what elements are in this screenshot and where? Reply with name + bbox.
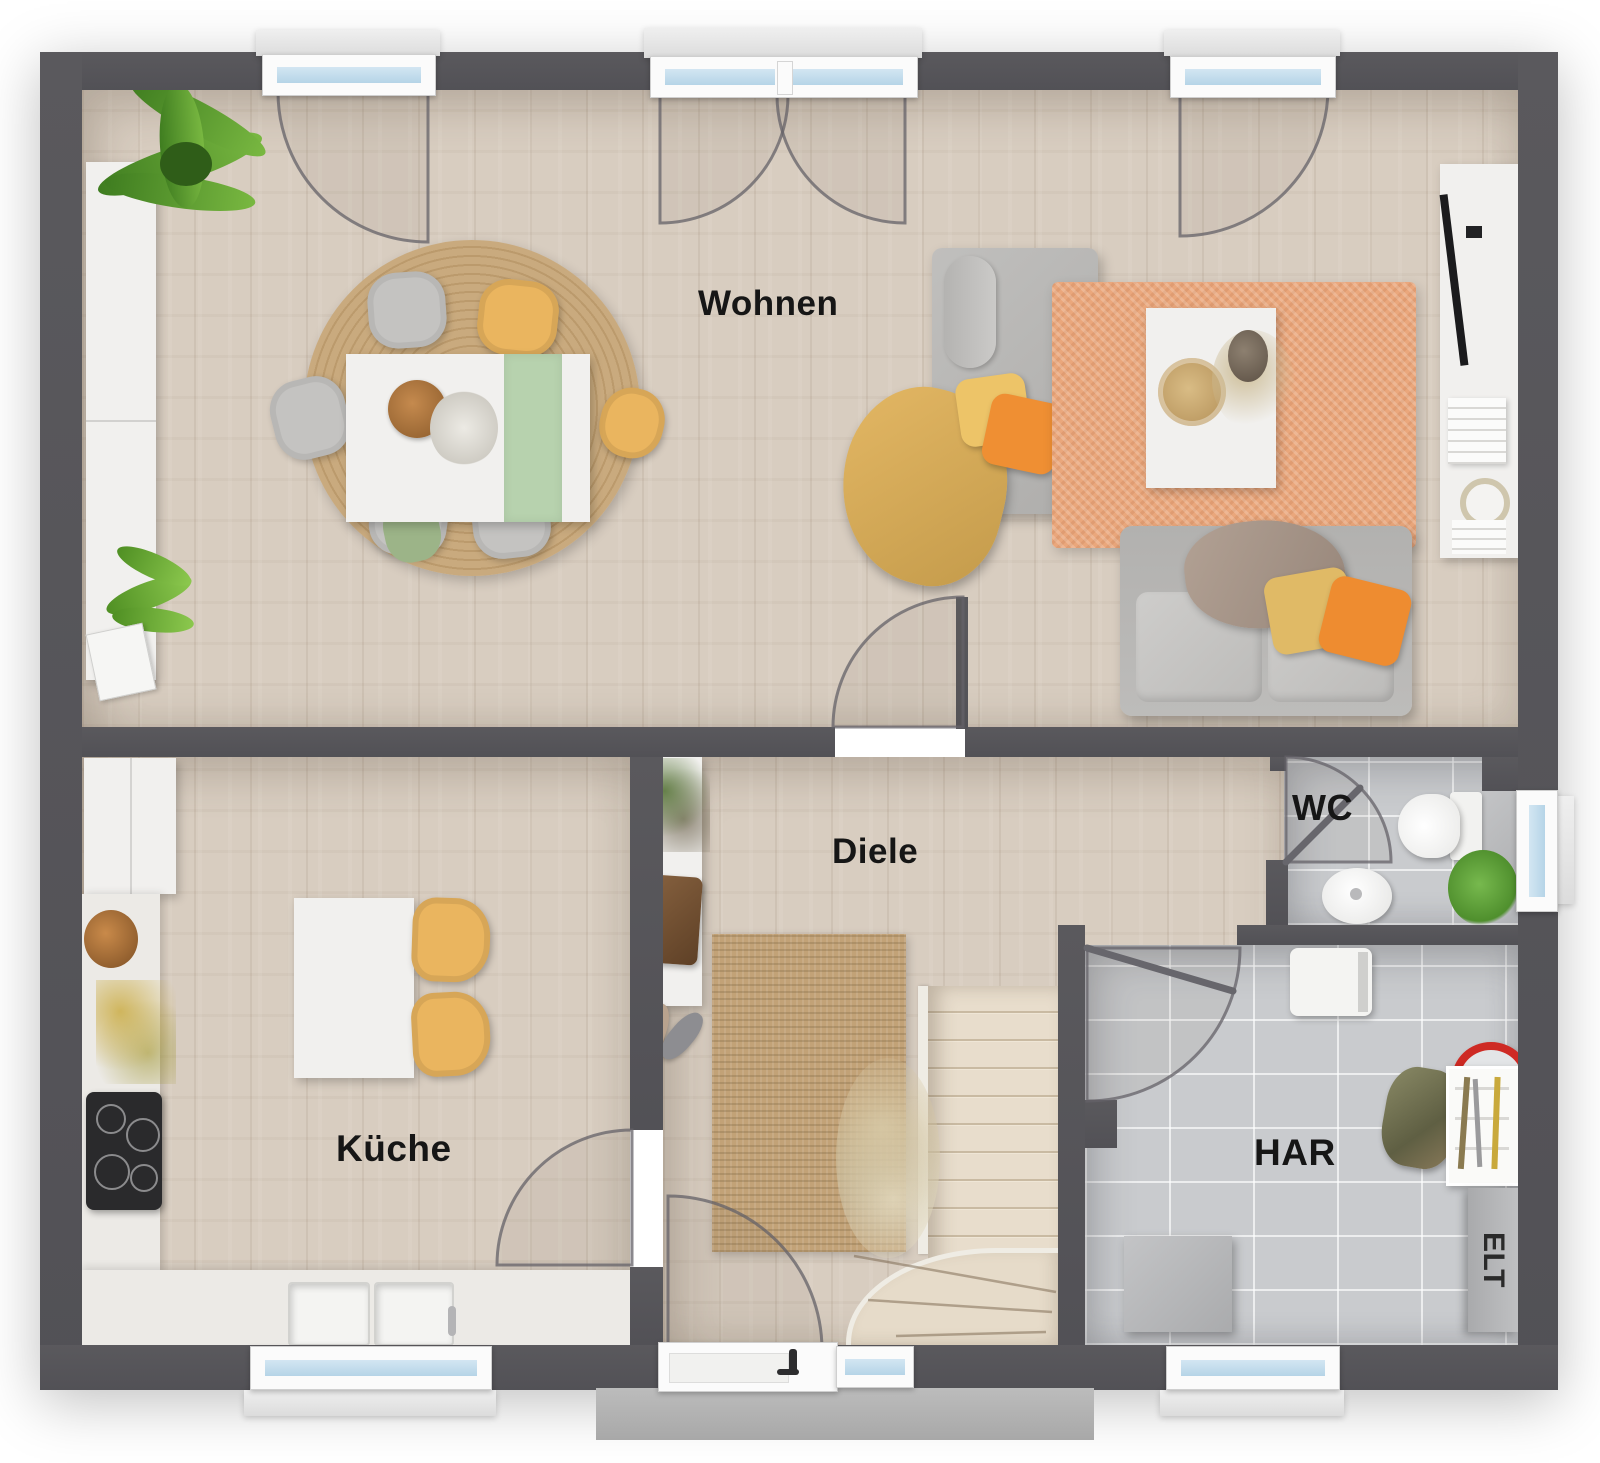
terrace-doors bbox=[650, 56, 918, 98]
label-har: HAR bbox=[1254, 1134, 1336, 1171]
floor-plan: Wohnen Diele Küche WC HAR ELT bbox=[0, 0, 1600, 1463]
window-swing-top-left bbox=[278, 92, 428, 242]
window-lintel bbox=[644, 28, 922, 58]
window-kitchen bbox=[250, 1346, 492, 1390]
door-swing-kueche bbox=[497, 1130, 632, 1265]
label-wc: WC bbox=[1292, 790, 1353, 826]
door-handle bbox=[777, 1369, 799, 1375]
window-lintel bbox=[1164, 30, 1340, 56]
stair-winder-tread bbox=[854, 1256, 1056, 1292]
stair-winder-tread bbox=[868, 1300, 1052, 1312]
window-lintel bbox=[256, 30, 440, 56]
window-swing-top-right bbox=[1180, 88, 1328, 236]
entry-sidelight bbox=[836, 1346, 914, 1388]
label-diele: Diele bbox=[832, 834, 918, 869]
stair-winder-tread bbox=[896, 1332, 1046, 1336]
window-wc bbox=[1516, 790, 1558, 912]
window-top-left bbox=[262, 54, 436, 96]
entry-door bbox=[658, 1342, 838, 1392]
label-elt: ELT bbox=[1468, 1188, 1518, 1332]
label-kueche: Küche bbox=[336, 1130, 452, 1167]
window-sill bbox=[244, 1390, 496, 1416]
entry-paving bbox=[596, 1388, 1094, 1440]
terrace-door-swing-right bbox=[777, 95, 905, 223]
terrace-door-swing-left bbox=[660, 95, 788, 223]
label-wohnen: Wohnen bbox=[698, 286, 838, 321]
door-swing-wohnen bbox=[833, 597, 963, 727]
door-swing-entry bbox=[668, 1196, 822, 1350]
door-swing-arcs bbox=[0, 0, 1600, 1463]
window-top-right bbox=[1170, 56, 1336, 98]
window-har bbox=[1166, 1346, 1340, 1390]
window-sill bbox=[1160, 1390, 1344, 1416]
